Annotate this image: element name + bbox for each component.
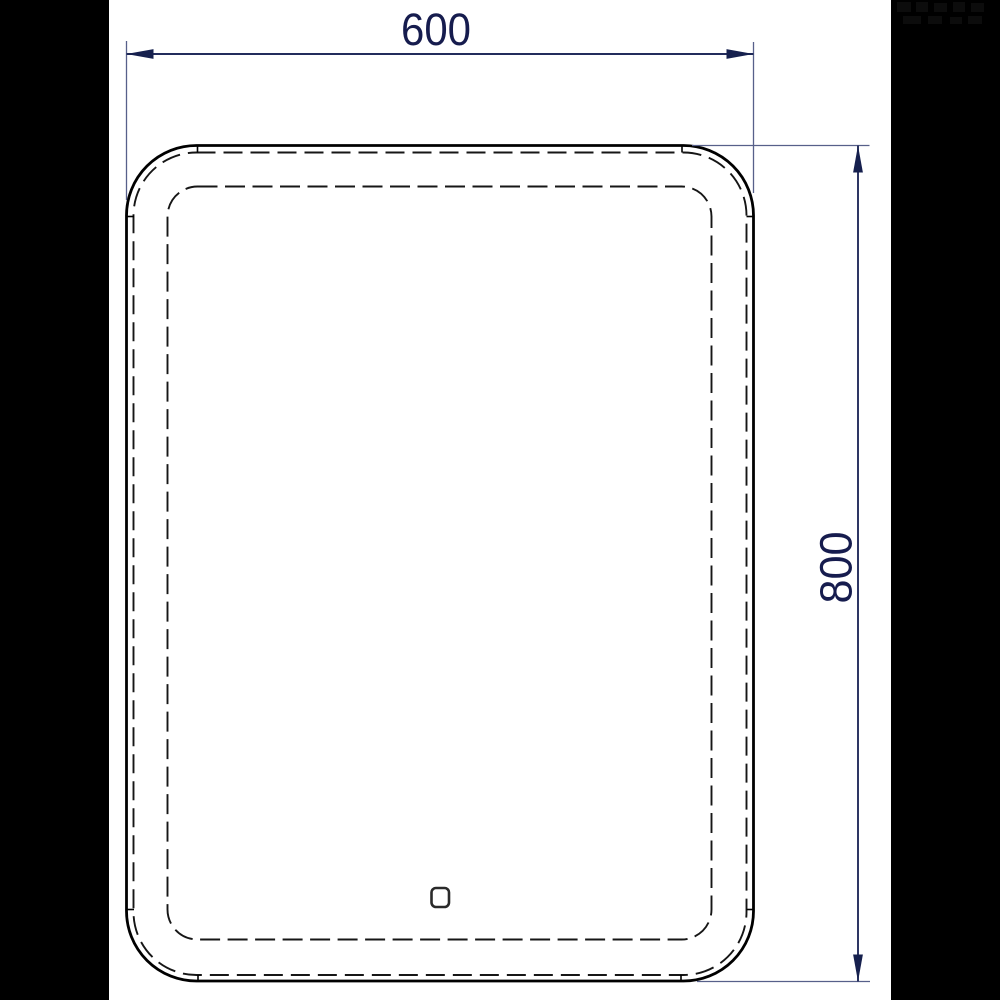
svg-text:800: 800 [811, 532, 862, 604]
svg-text:600: 600 [401, 4, 471, 55]
